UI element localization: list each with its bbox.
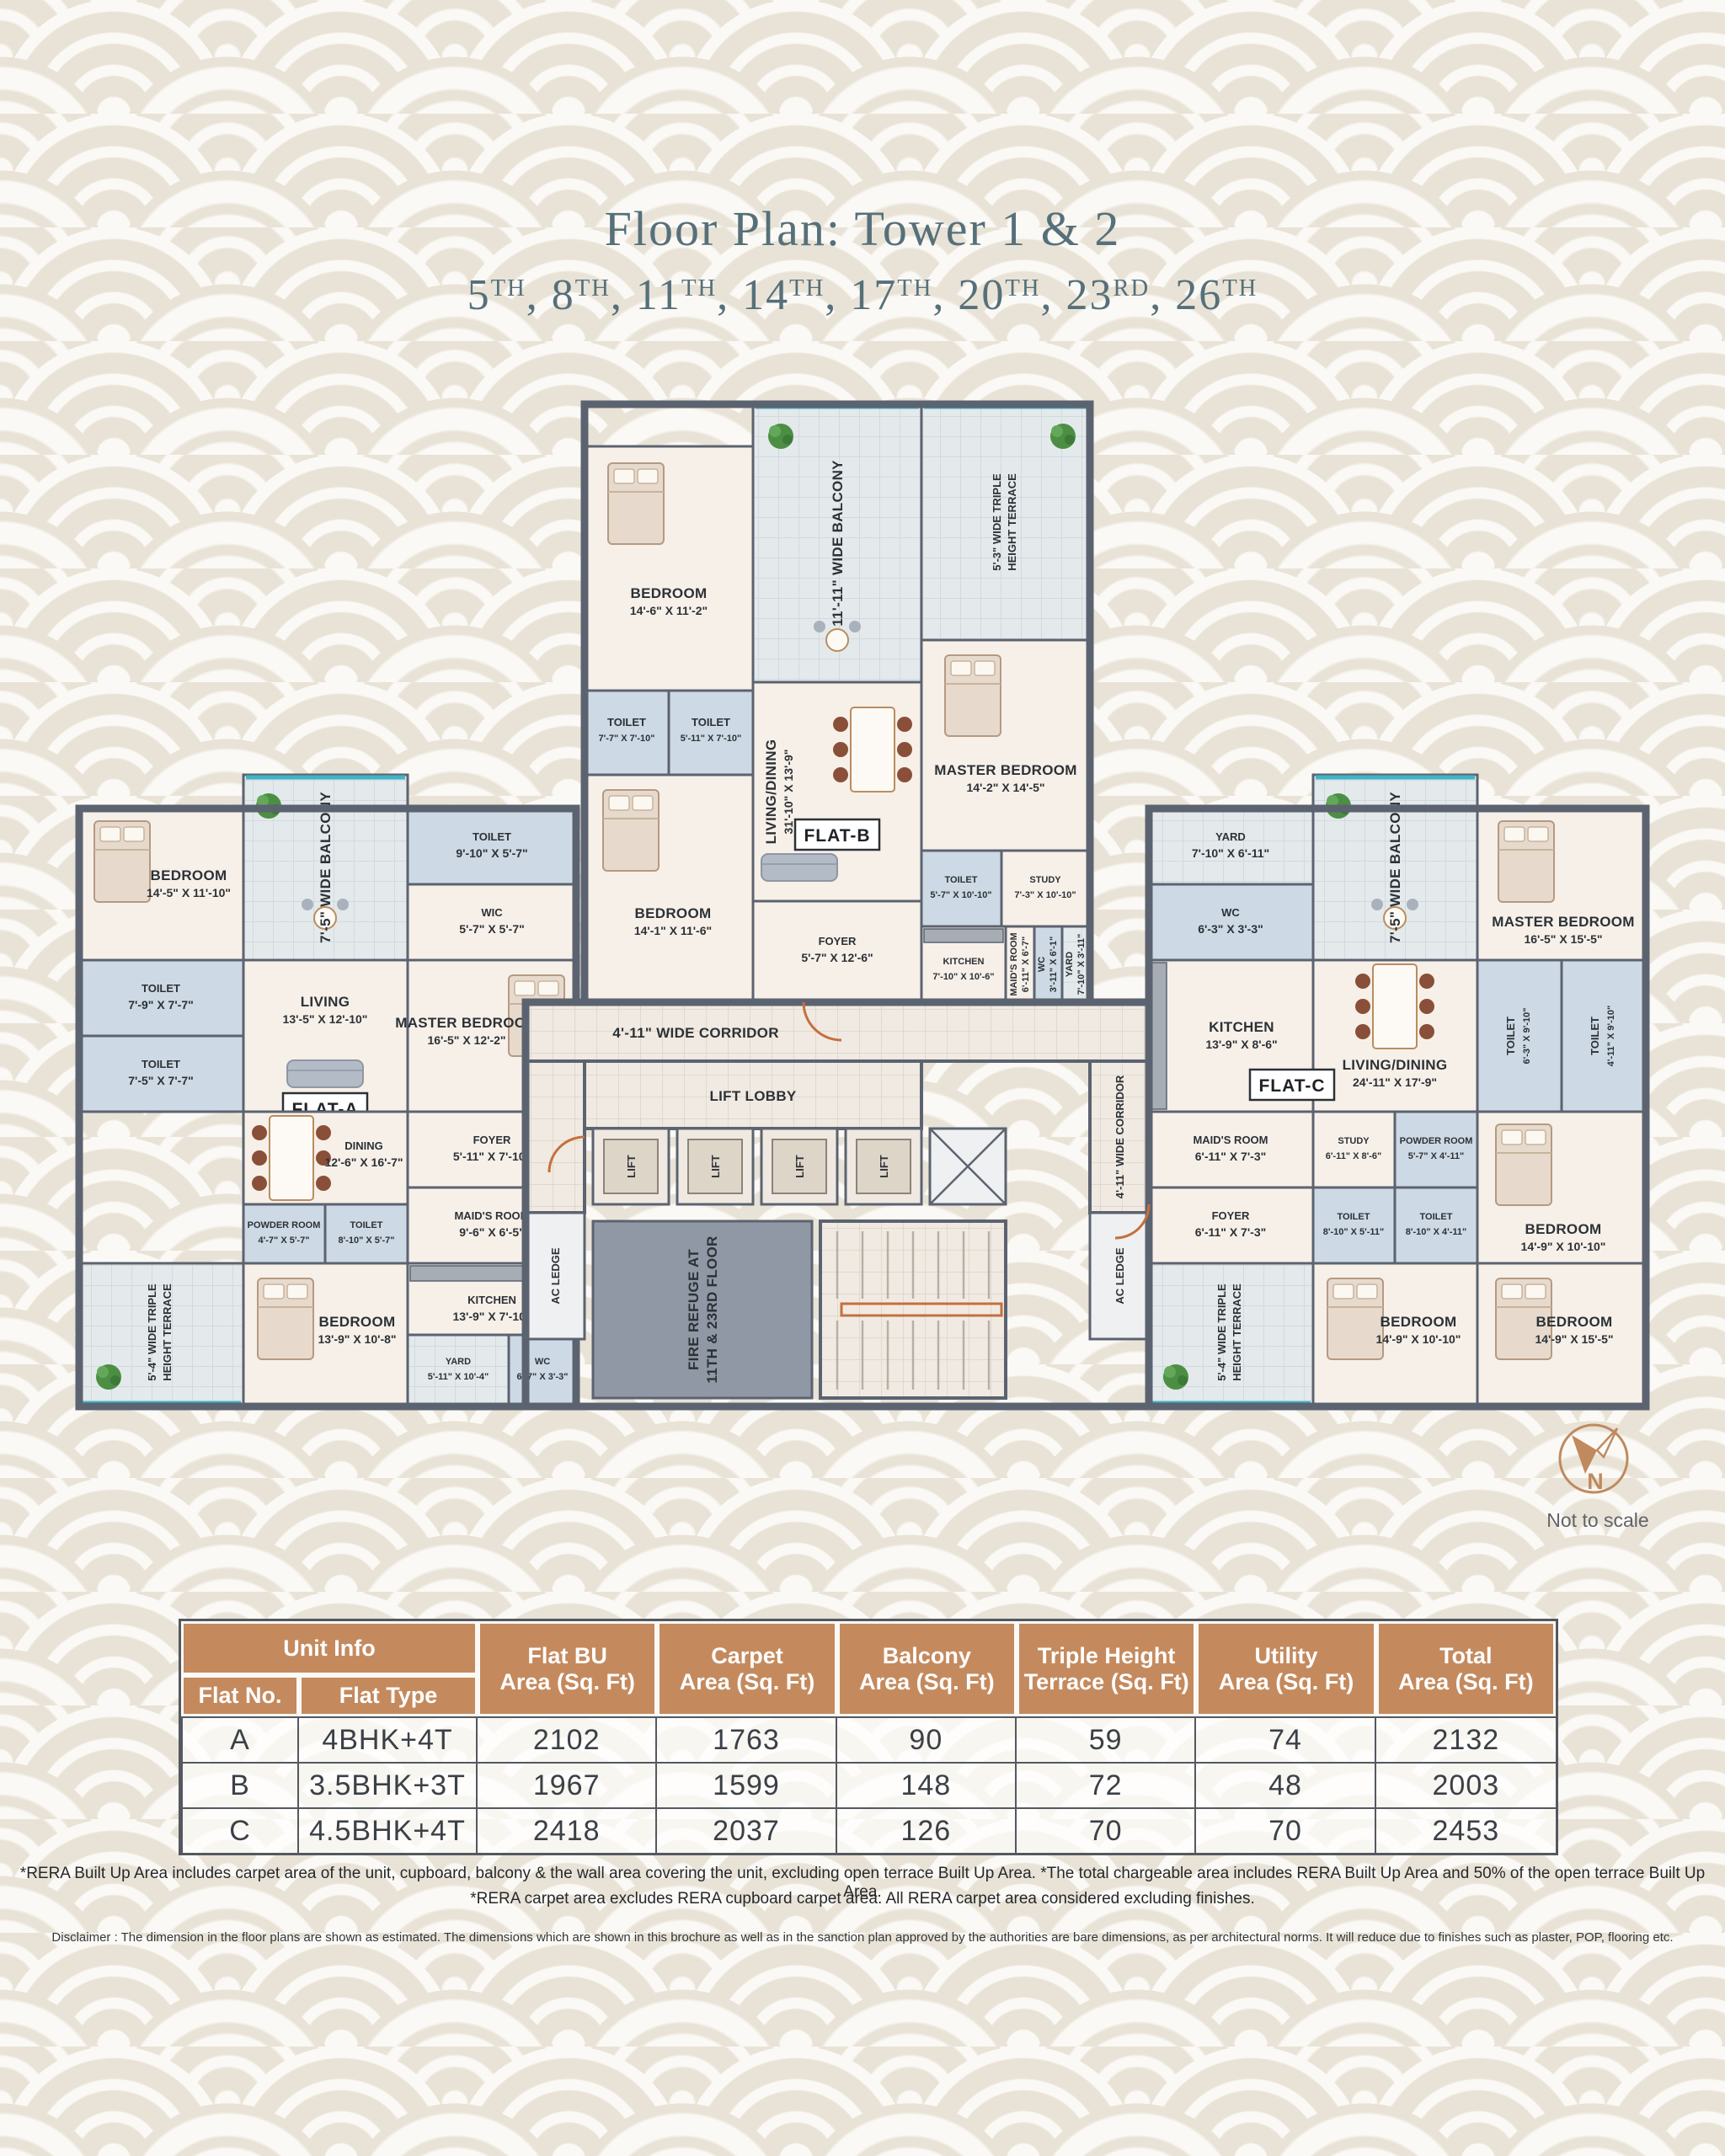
staircase [820, 1221, 1006, 1398]
lift-2: LIFT [677, 1129, 753, 1204]
plant-icon [1163, 1364, 1188, 1390]
svg-text:13'-5" X 12'-10": 13'-5" X 12'-10" [283, 1012, 368, 1026]
svg-text:5'-7" X 12'-6": 5'-7" X 12'-6" [801, 951, 873, 964]
flat-c: YARD 7'-10" X 6'-11" WC 6'-3" X 3'-3" 7'… [1149, 775, 1646, 1406]
svg-text:8'-10" X 5'-7": 8'-10" X 5'-7" [338, 1235, 394, 1246]
room-flat-b-maid: MAID'S ROOM 6'-11" X 6'-7" [1006, 926, 1034, 1002]
svg-text:BEDROOM: BEDROOM [635, 905, 712, 921]
svg-text:16'-5" X 12'-2": 16'-5" X 12'-2" [427, 1033, 505, 1047]
svg-text:LIFT: LIFT [625, 1155, 638, 1177]
room-flat-a-powder: POWDER ROOM 4'-7" X 5'-7" [243, 1204, 325, 1263]
svg-text:13'-9" X 10'-8": 13'-9" X 10'-8" [318, 1332, 396, 1346]
flat-a: 7'-5" WIDE BALCONY BEDROOM 14'-5" X 11'-… [79, 775, 576, 1406]
bed-icon [1496, 1124, 1551, 1205]
svg-text:7'-5" WIDE BALCONY: 7'-5" WIDE BALCONY [1387, 792, 1403, 943]
svg-text:TOILET: TOILET [607, 716, 646, 728]
room-flat-a-toilet-3: TOILET 7'-5" X 7'-7" [79, 1036, 243, 1112]
svg-text:WIC: WIC [481, 906, 503, 919]
svg-text:KITCHEN: KITCHEN [943, 957, 985, 967]
svg-text:LIFT LOBBY: LIFT LOBBY [709, 1088, 796, 1104]
svg-text:12'-6" X 16'-7": 12'-6" X 16'-7" [324, 1155, 403, 1169]
svg-text:TOILET: TOILET [350, 1220, 383, 1230]
svg-text:POWDER ROOM: POWDER ROOM [1400, 1136, 1473, 1146]
lift-1: LIFT [593, 1129, 669, 1204]
svg-text:TOILET: TOILET [1589, 1017, 1601, 1055]
svg-text:FIRE REFUGE AT: FIRE REFUGE AT [686, 1249, 702, 1370]
svg-text:YARD: YARD [1065, 952, 1075, 977]
room-flat-c-balcony: 7'-5" WIDE BALCONY [1313, 775, 1477, 960]
flat-b: 11'-11" WIDE BALCONY 5'-3" WIDE TRIPLE H… [585, 404, 1090, 1002]
flat-b-tag: FLAT-B [795, 819, 879, 850]
central-core: 4'-11" WIDE CORRIDOR 4'-11" WIDE CORRIDO… [526, 1002, 1149, 1406]
room-flat-b-wc: WC 3'-11" X 6'-1" [1034, 926, 1062, 1002]
svg-text:TOILET: TOILET [473, 830, 511, 843]
svg-text:MAID'S ROOM: MAID'S ROOM [454, 1209, 529, 1222]
svg-text:5'-4" WIDE TRIPLE: 5'-4" WIDE TRIPLE [1215, 1283, 1228, 1381]
svg-text:14'-6" X 11'-2": 14'-6" X 11'-2" [630, 604, 708, 617]
ac-ledge-left: AC LEDGE [526, 1213, 585, 1339]
room-flat-a-dining: DINING 12'-6" X 16'-7" [243, 1112, 408, 1204]
bed-icon [94, 821, 150, 902]
room-flat-a-wc: WC 6'-7" X 3'-3" [509, 1335, 576, 1406]
svg-text:24'-11" X 17'-9": 24'-11" X 17'-9" [1353, 1075, 1437, 1089]
bed-icon [1327, 1278, 1383, 1359]
room-flat-b-terrace: 5'-3" WIDE TRIPLE HEIGHT TERRACE [921, 404, 1090, 640]
svg-text:3'-11" X 6'-1": 3'-11" X 6'-1" [1049, 937, 1059, 992]
lift-lobby: LIFT LOBBY [585, 1061, 921, 1129]
svg-text:31'-10" X 13'-9": 31'-10" X 13'-9" [782, 750, 795, 835]
svg-text:7'-10" X 3'-11": 7'-10" X 3'-11" [1076, 934, 1087, 995]
room-flat-b-toilet-3: TOILET 5'-7" X 10'-10" [921, 851, 1001, 926]
svg-text:FOYER: FOYER [819, 935, 857, 947]
plant-icon [1050, 424, 1076, 449]
compass-n-label: N [1587, 1469, 1604, 1494]
svg-text:FOYER: FOYER [1212, 1209, 1250, 1222]
col-header-flat-type: Flat Type [299, 1675, 478, 1716]
svg-text:7'-5" WIDE BALCONY: 7'-5" WIDE BALCONY [318, 792, 334, 943]
svg-text:4'-11" WIDE CORRIDOR: 4'-11" WIDE CORRIDOR [1114, 1075, 1126, 1198]
not-to-scale-note: Not to scale [1526, 1509, 1669, 1532]
bed-icon [603, 790, 659, 871]
lift-3: LIFT [761, 1129, 837, 1204]
svg-text:LIVING/DINING: LIVING/DINING [1343, 1057, 1448, 1073]
svg-text:6'-11" X 7'-3": 6'-11" X 7'-3" [1195, 1225, 1267, 1239]
room-flat-a-toilet-1: TOILET 9'-10" X 5'-7" [408, 808, 576, 884]
svg-text:STUDY: STUDY [1338, 1136, 1370, 1146]
svg-text:11TH & 23RD FLOOR: 11TH & 23RD FLOOR [704, 1235, 720, 1383]
room-flat-b-bedroom-2: BEDROOM 14'-1" X 11'-6" [585, 775, 753, 1002]
svg-text:LIFT: LIFT [793, 1155, 806, 1177]
svg-text:5'-4" WIDE TRIPLE: 5'-4" WIDE TRIPLE [146, 1283, 158, 1381]
bed-icon [1498, 821, 1554, 902]
svg-text:MAID'S ROOM: MAID'S ROOM [1009, 932, 1019, 995]
dining-table-icon [1355, 964, 1434, 1049]
lift-4: LIFT [846, 1129, 921, 1204]
col-header-flat-no: Flat No. [181, 1675, 299, 1716]
compass-needle-outline-icon [1597, 1428, 1617, 1457]
svg-text:BEDROOM: BEDROOM [151, 867, 227, 883]
svg-text:5'-7" X 4'-11": 5'-7" X 4'-11" [1408, 1151, 1464, 1161]
room-flat-a-bedroom-3: BEDROOM 13'-9" X 10'-8" [243, 1263, 408, 1406]
svg-text:TOILET: TOILET [945, 875, 978, 885]
svg-text:5'-11" X 7'-10": 5'-11" X 7'-10" [453, 1150, 531, 1163]
room-flat-b-kitchen: KITCHEN 7'-10" X 10'-6" [921, 926, 1006, 1002]
sofa-icon [761, 854, 837, 881]
room-flat-b-living: LIVING/DINING 31'-10" X 13'-9" [753, 682, 921, 901]
dining-table-icon [252, 1116, 331, 1200]
table-row-flat-a: A4BHK+4T210217639059742132 [181, 1716, 1556, 1764]
svg-text:BEDROOM: BEDROOM [1525, 1221, 1602, 1237]
room-flat-c-terrace: 5'-4" WIDE TRIPLE HEIGHT TERRACE [1149, 1263, 1313, 1406]
room-flat-b-yard: YARD 7'-10" X 3'-11" [1062, 926, 1090, 1002]
ac-ledge-right: AC LEDGE [1090, 1213, 1149, 1339]
svg-text:5'-11" X 10'-4": 5'-11" X 10'-4" [428, 1372, 489, 1382]
svg-text:BEDROOM: BEDROOM [1381, 1314, 1457, 1330]
svg-text:LIFT: LIFT [709, 1155, 722, 1177]
room-flat-a-balcony: 7'-5" WIDE BALCONY [243, 775, 408, 960]
svg-text:13'-9" X 7'-10": 13'-9" X 7'-10" [452, 1310, 531, 1323]
room-flat-c-bedroom-2: BEDROOM 14'-9" X 10'-10" [1313, 1263, 1477, 1406]
svg-text:7'-3" X 10'-10": 7'-3" X 10'-10" [1014, 890, 1076, 900]
room-flat-b-balcony: 11'-11" WIDE BALCONY [753, 404, 921, 682]
svg-text:4'-11" X 9'-10": 4'-11" X 9'-10" [1606, 1006, 1616, 1067]
svg-text:TOILET: TOILET [1420, 1212, 1453, 1222]
room-flat-c-toilet-1: TOILET 6'-3" X 9'-10" [1477, 960, 1562, 1112]
svg-text:LIVING/DINING: LIVING/DINING [763, 739, 779, 845]
room-flat-c-wc: WC 6'-3" X 3'-3" [1149, 884, 1313, 960]
bed-icon [258, 1278, 313, 1359]
svg-text:HEIGHT TERRACE: HEIGHT TERRACE [1006, 473, 1018, 571]
svg-text:YARD: YARD [446, 1357, 471, 1367]
svg-text:7'-10" X 6'-11": 7'-10" X 6'-11" [1192, 846, 1269, 860]
svg-text:11'-11" WIDE BALCONY: 11'-11" WIDE BALCONY [830, 460, 846, 627]
svg-text:MAID'S ROOM: MAID'S ROOM [1193, 1134, 1268, 1146]
room-flat-a-wic: WIC 5'-7" X 5'-7" [408, 884, 576, 960]
svg-text:LIVING: LIVING [301, 994, 350, 1010]
room-flat-c-living: LIVING/DINING 24'-11" X 17'-9" [1313, 960, 1477, 1112]
floor-plan: 7'-5" WIDE BALCONY BEDROOM 14'-5" X 11'-… [71, 396, 1654, 1440]
room-flat-c-foyer: FOYER 6'-11" X 7'-3" [1149, 1187, 1313, 1263]
svg-text:14'-1" X 11'-6": 14'-1" X 11'-6" [634, 924, 712, 937]
plant-icon [96, 1364, 121, 1390]
svg-text:BEDROOM: BEDROOM [631, 585, 708, 601]
svg-text:LIFT: LIFT [878, 1155, 890, 1177]
svg-text:MASTER BEDROOM: MASTER BEDROOM [395, 1015, 537, 1031]
room-flat-c-powder: POWDER ROOM 5'-7" X 4'-11" [1395, 1112, 1477, 1187]
service-shaft [930, 1129, 1006, 1204]
table-row-flat-c: C4.5BHK+4T2418203712670702453 [181, 1809, 1556, 1853]
col-header-utility: UtilityArea (Sq. Ft) [1196, 1621, 1375, 1716]
bed-icon [608, 463, 664, 544]
room-flat-b-toilet-1: TOILET 7'-7" X 7'-10" [585, 691, 669, 775]
room-flat-a-living: LIVING 13'-5" X 12'-10" [243, 960, 408, 1112]
svg-text:HEIGHT TERRACE: HEIGHT TERRACE [1231, 1283, 1243, 1381]
svg-text:FLAT-B: FLAT-B [804, 826, 870, 846]
unit-info-table: Unit Info Flat BUArea (Sq. Ft) CarpetAre… [179, 1619, 1558, 1855]
svg-text:7'-9" X 7'-7": 7'-9" X 7'-7" [128, 998, 194, 1011]
svg-text:8'-10" X 5'-11": 8'-10" X 5'-11" [1323, 1227, 1385, 1237]
svg-text:AC LEDGE: AC LEDGE [549, 1247, 562, 1305]
room-flat-c-toilet-4: TOILET 8'-10" X 4'-11" [1395, 1187, 1477, 1263]
svg-text:AC LEDGE: AC LEDGE [1114, 1247, 1126, 1305]
col-header-total: TotalArea (Sq. Ft) [1376, 1621, 1556, 1716]
svg-text:14'-5" X 11'-10": 14'-5" X 11'-10" [147, 886, 231, 899]
svg-text:7'-7" X 7'-10": 7'-7" X 7'-10" [598, 734, 654, 744]
table-row-flat-b: B3.5BHK+3T1967159914872482003 [181, 1764, 1556, 1809]
col-header-balcony: BalconyArea (Sq. Ft) [837, 1621, 1017, 1716]
svg-text:TOILET: TOILET [142, 982, 180, 995]
svg-text:9'-6" X 6'-5": 9'-6" X 6'-5" [459, 1225, 525, 1239]
svg-text:13'-9" X 8'-6": 13'-9" X 8'-6" [1205, 1038, 1277, 1051]
room-flat-c-toilet-2: TOILET 4'-11" X 9'-10" [1562, 960, 1646, 1112]
room-flat-c-bedroom-1: BEDROOM 14'-9" X 10'-10" [1477, 1112, 1646, 1263]
room-flat-c-toilet-3: TOILET 8'-10" X 5'-11" [1313, 1187, 1395, 1263]
room-flat-a-toilet-4: TOILET 8'-10" X 5'-7" [325, 1204, 408, 1263]
col-header-terrace: Triple HeightTerrace (Sq. Ft) [1017, 1621, 1196, 1716]
title-block: Floor Plan: Tower 1 & 2 5TH, 8TH, 11TH, … [0, 200, 1725, 320]
svg-text:FLAT-C: FLAT-C [1258, 1076, 1325, 1096]
room-flat-b-master-bedroom: MASTER BEDROOM 14'-2" X 14'-5" [921, 640, 1090, 851]
disclaimer: Disclaimer : The dimension in the floor … [0, 1930, 1725, 1945]
unit-info-header: Unit Info [181, 1621, 478, 1675]
room-flat-c-bedroom-3: BEDROOM 14'-9" X 15'-5" [1477, 1263, 1646, 1406]
svg-text:14'-9" X 10'-10": 14'-9" X 10'-10" [1376, 1332, 1461, 1346]
footnote-line-2: *RERA carpet area excludes RERA cupboard… [0, 1890, 1725, 1908]
svg-text:FOYER: FOYER [473, 1134, 511, 1146]
sofa-icon [287, 1060, 363, 1087]
plant-icon [768, 424, 793, 449]
svg-text:TOILET: TOILET [1338, 1212, 1370, 1222]
room-flat-b-bedroom-1: BEDROOM 14'-6" X 11'-2" [585, 446, 753, 691]
svg-text:14'-2" X 14'-5": 14'-2" X 14'-5" [966, 781, 1044, 794]
svg-text:TOILET: TOILET [692, 716, 730, 728]
room-flat-a-terrace: 5'-4" WIDE TRIPLE HEIGHT TERRACE [79, 1263, 243, 1406]
bed-icon [945, 655, 1001, 736]
room-flat-a-yard: YARD 5'-11" X 10'-4" [408, 1335, 509, 1406]
svg-text:MASTER BEDROOM: MASTER BEDROOM [934, 762, 1076, 778]
fire-refuge: FIRE REFUGE AT 11TH & 23RD FLOOR [593, 1221, 812, 1398]
room-flat-c-master-bedroom: MASTER BEDROOM 16'-5" X 15'-5" [1477, 808, 1646, 960]
room-flat-b-study: STUDY 7'-3" X 10'-10" [1001, 851, 1090, 926]
svg-text:WC: WC [1037, 957, 1047, 972]
svg-text:6'-3" X 9'-10": 6'-3" X 9'-10" [1522, 1007, 1532, 1064]
room-flat-b-foyer: FOYER 5'-7" X 12'-6" [753, 901, 921, 1002]
svg-text:HEIGHT TERRACE: HEIGHT TERRACE [161, 1283, 174, 1381]
room-flat-b-toilet-2: TOILET 5'-11" X 7'-10" [669, 691, 753, 775]
svg-text:5'-7" X 10'-10": 5'-7" X 10'-10" [930, 890, 991, 900]
svg-text:14'-9" X 10'-10": 14'-9" X 10'-10" [1521, 1240, 1606, 1253]
svg-text:YARD: YARD [1215, 830, 1246, 843]
svg-text:TOILET: TOILET [142, 1058, 180, 1070]
svg-text:POWDER ROOM: POWDER ROOM [248, 1220, 321, 1230]
svg-text:WC: WC [1221, 906, 1240, 919]
col-header-carpet: CarpetArea (Sq. Ft) [657, 1621, 836, 1716]
svg-text:8'-10" X 4'-11": 8'-10" X 4'-11" [1406, 1227, 1467, 1237]
room-flat-c-yard: YARD 7'-10" X 6'-11" [1149, 808, 1313, 884]
svg-text:7'-10" X 10'-6": 7'-10" X 10'-6" [932, 972, 994, 982]
svg-text:6'-11" X 8'-6": 6'-11" X 8'-6" [1326, 1151, 1381, 1161]
dining-table-icon [833, 707, 912, 792]
room-flat-a-toilet-2: TOILET 7'-9" X 7'-7" [79, 960, 243, 1036]
svg-text:6'-3" X 3'-3": 6'-3" X 3'-3" [1198, 922, 1263, 936]
svg-text:6'-11" X 7'-3": 6'-11" X 7'-3" [1195, 1150, 1267, 1163]
svg-text:KITCHEN: KITCHEN [467, 1294, 516, 1306]
svg-text:7'-5" X 7'-7": 7'-5" X 7'-7" [128, 1074, 194, 1087]
room-flat-c-maid: MAID'S ROOM 6'-11" X 7'-3" [1149, 1112, 1313, 1187]
svg-text:4'-7" X 5'-7": 4'-7" X 5'-7" [259, 1235, 310, 1246]
svg-text:BEDROOM: BEDROOM [319, 1314, 396, 1330]
svg-text:5'-11" X 7'-10": 5'-11" X 7'-10" [681, 734, 742, 744]
svg-text:WC: WC [535, 1357, 550, 1367]
svg-text:16'-5" X 15'-5": 16'-5" X 15'-5" [1524, 932, 1602, 946]
svg-text:BEDROOM: BEDROOM [1536, 1314, 1613, 1330]
svg-text:KITCHEN: KITCHEN [1209, 1019, 1274, 1035]
svg-text:MASTER BEDROOM: MASTER BEDROOM [1492, 914, 1634, 930]
svg-text:5'-3" WIDE TRIPLE: 5'-3" WIDE TRIPLE [991, 473, 1003, 571]
room-flat-c-study: STUDY 6'-11" X 8'-6" [1313, 1112, 1395, 1187]
col-header-flat-bu: Flat BUArea (Sq. Ft) [478, 1621, 657, 1716]
svg-text:DINING: DINING [344, 1139, 383, 1152]
svg-text:14'-9" X 15'-5": 14'-9" X 15'-5" [1535, 1332, 1613, 1346]
svg-text:TOILET: TOILET [1504, 1017, 1517, 1055]
svg-text:6'-11" X 6'-7": 6'-11" X 6'-7" [1021, 937, 1031, 992]
svg-text:STUDY: STUDY [1029, 875, 1061, 885]
page-title: Floor Plan: Tower 1 & 2 [0, 200, 1725, 257]
flat-c-tag: FLAT-C [1250, 1070, 1334, 1100]
brochure-page: { "colors":{"accent_tan":"#c48a5e","wall… [0, 0, 1725, 2156]
room-flat-a-bedroom-1: BEDROOM 14'-5" X 11'-10" [79, 808, 243, 960]
svg-text:4'-11" WIDE CORRIDOR: 4'-11" WIDE CORRIDOR [612, 1025, 779, 1041]
floors-subtitle: 5TH, 8TH, 11TH, 14TH, 17TH, 20TH, 23RD, … [0, 270, 1725, 320]
svg-text:9'-10" X 5'-7": 9'-10" X 5'-7" [456, 846, 527, 860]
svg-text:5'-7" X 5'-7": 5'-7" X 5'-7" [459, 922, 525, 936]
north-compass: N [1543, 1415, 1644, 1508]
